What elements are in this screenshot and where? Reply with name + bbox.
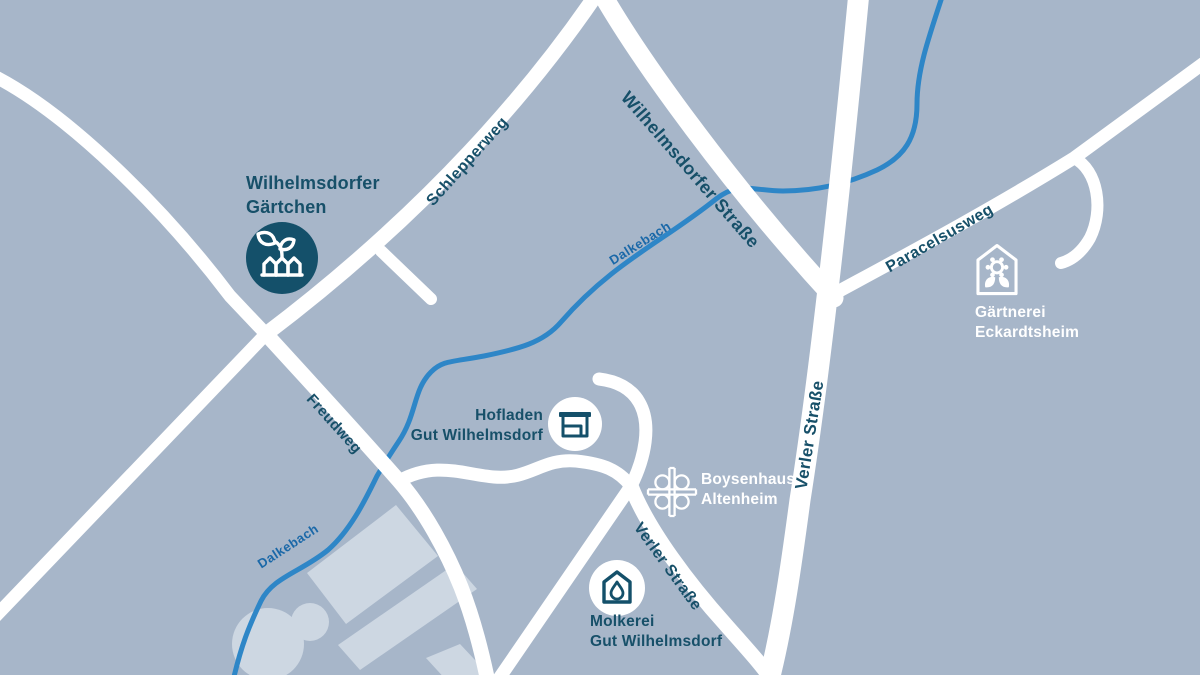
house-drop-icon xyxy=(595,566,639,610)
market-stall-icon xyxy=(553,402,597,446)
poi-label-wilhelmsdorfer-gaertchen: Wilhelmsdorfer Gärtchen xyxy=(246,172,380,220)
sprout-garden-bed-icon xyxy=(246,222,318,294)
building-shape-circle xyxy=(291,603,329,641)
poi-marker-wilhelmsdorfer-gaertchen[interactable] xyxy=(246,222,318,294)
road-stub-schlepperweg xyxy=(381,251,431,299)
poi-marker-molkerei[interactable] xyxy=(589,560,645,616)
poi-marker-gaertnerei-eckardtsheim[interactable] xyxy=(971,241,1023,304)
road-verler-strasse-main xyxy=(769,0,859,675)
site-map: Schlepperweg Wilhelmsdorfer Straße Parac… xyxy=(0,0,1200,675)
road-northwest-curve xyxy=(0,76,266,334)
road-southwest xyxy=(0,334,266,620)
poi-label-gaertnerei-eckardtsheim: Gärtnerei Eckardtsheim xyxy=(975,303,1079,344)
road-hofladen-access xyxy=(399,461,631,486)
poi-label-molkerei: Molkerei Gut Wilhelmsdorf xyxy=(590,612,722,653)
poi-marker-boysenhaus[interactable] xyxy=(646,466,698,523)
poi-label-boysenhaus: Boysenhaus Altenheim xyxy=(701,470,795,511)
poi-label-hofladen: Hofladen Gut Wilhelmsdorf xyxy=(411,406,543,447)
road-stub-gaertnerei xyxy=(1061,158,1097,263)
bethel-cross-icon xyxy=(646,466,698,518)
poi-marker-hofladen[interactable] xyxy=(548,397,602,451)
greenhouse-flower-icon xyxy=(971,241,1023,299)
